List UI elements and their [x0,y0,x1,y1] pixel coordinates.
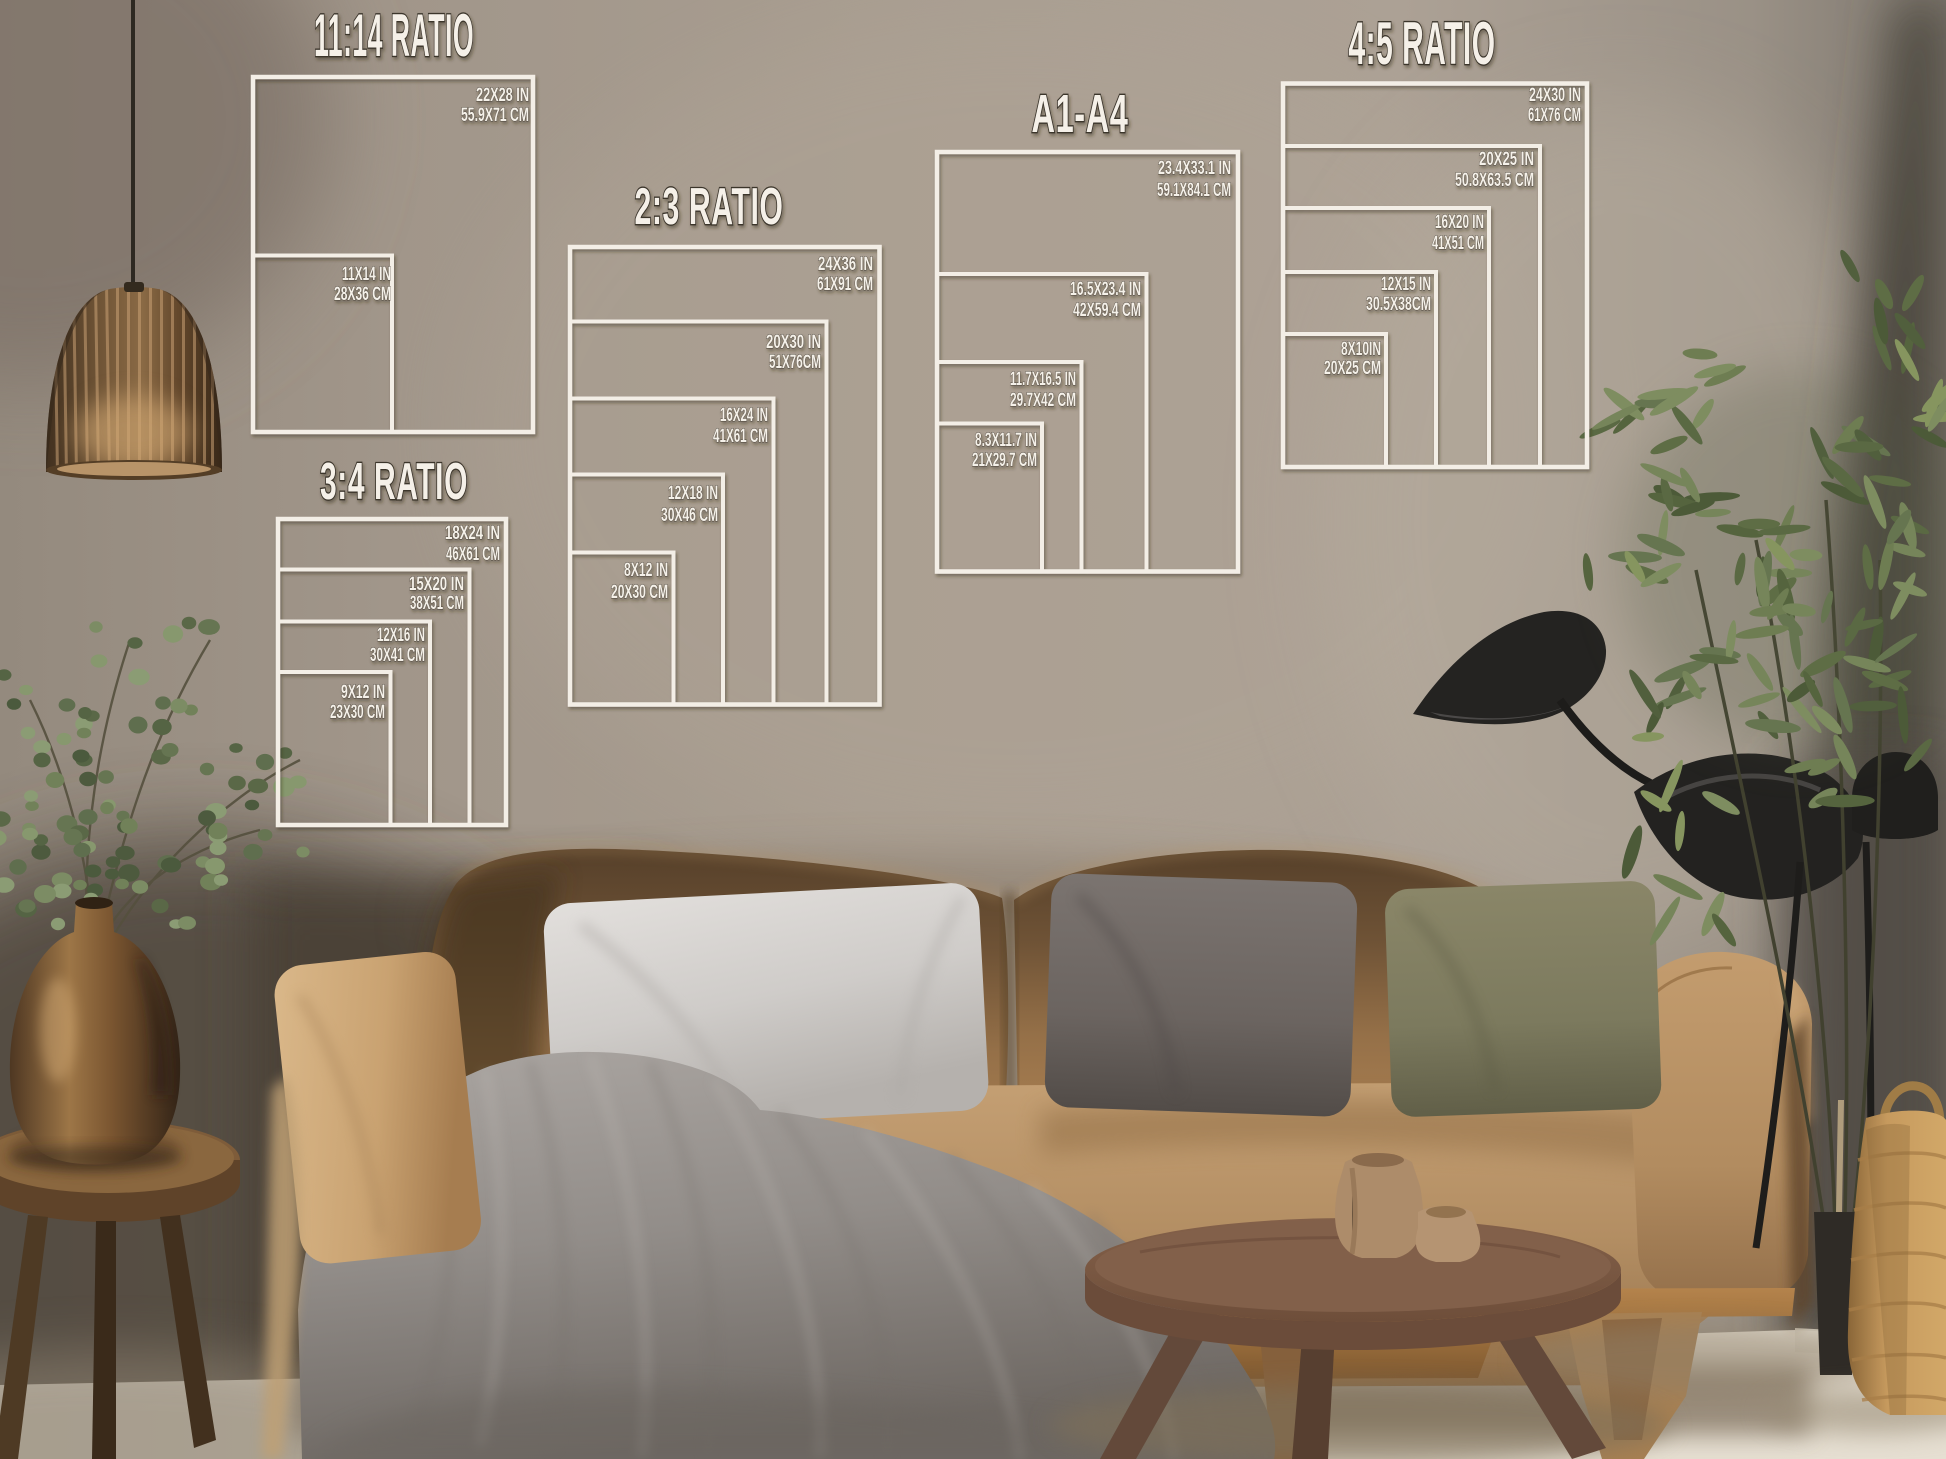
svg-text:9X12 IN: 9X12 IN [341,681,385,703]
svg-text:61X91 CM: 61X91 CM [817,273,873,295]
svg-text:12X18 IN: 12X18 IN [668,482,718,504]
svg-text:24X30 IN: 24X30 IN [1529,84,1581,106]
svg-text:41X61 CM: 41X61 CM [713,425,768,447]
svg-text:29.7X42 CM: 29.7X42 CM [1010,389,1076,411]
svg-text:28X36 CM: 28X36 CM [334,283,391,305]
svg-text:8X12 IN: 8X12 IN [624,559,668,581]
svg-text:30.5X38CM: 30.5X38CM [1366,293,1431,315]
svg-text:11.7X16.5 IN: 11.7X16.5 IN [1010,368,1076,390]
svg-text:20X25 IN: 20X25 IN [1479,148,1534,170]
svg-text:59.1X84.1 CM: 59.1X84.1 CM [1157,179,1231,201]
svg-text:18X24 IN: 18X24 IN [445,522,500,544]
svg-text:12X16 IN: 12X16 IN [377,624,425,646]
svg-text:50.8X63.5 CM: 50.8X63.5 CM [1455,169,1534,191]
svg-text:21X29.7 CM: 21X29.7 CM [972,449,1037,471]
svg-text:55.9X71 CM: 55.9X71 CM [461,104,529,126]
svg-text:11X14 IN: 11X14 IN [342,263,391,285]
svg-text:51X76CM: 51X76CM [769,351,821,373]
svg-text:20X30 CM: 20X30 CM [611,581,668,603]
svg-text:41X51 CM: 41X51 CM [1432,232,1484,254]
svg-text:46X61 CM: 46X61 CM [446,543,500,565]
svg-text:2:3 RATIO: 2:3 RATIO [635,178,784,236]
svg-text:16X24 IN: 16X24 IN [720,404,768,426]
svg-text:23X30 CM: 23X30 CM [330,701,385,723]
svg-text:20X25 CM: 20X25 CM [1324,357,1381,379]
svg-text:38X51 CM: 38X51 CM [410,592,464,614]
svg-text:8.3X11.7 IN: 8.3X11.7 IN [975,429,1037,451]
svg-text:23.4X33.1 IN: 23.4X33.1 IN [1158,157,1231,179]
svg-text:3:4 RATIO: 3:4 RATIO [320,453,468,511]
svg-text:30X41 CM: 30X41 CM [370,644,425,666]
svg-text:22X28 IN: 22X28 IN [476,84,529,106]
svg-text:11:14 RATIO: 11:14 RATIO [314,2,474,69]
svg-text:4:5 RATIO: 4:5 RATIO [1349,10,1496,77]
svg-text:42X59.4 CM: 42X59.4 CM [1073,299,1141,321]
svg-text:12X15 IN: 12X15 IN [1381,273,1431,295]
svg-text:16.5X23.4 IN: 16.5X23.4 IN [1070,278,1141,300]
svg-text:20X30 IN: 20X30 IN [766,331,821,353]
svg-text:A1-A4: A1-A4 [1032,84,1129,144]
svg-text:61X76 CM: 61X76 CM [1528,104,1581,126]
svg-text:24X36 IN: 24X36 IN [818,253,873,275]
svg-text:30X46 CM: 30X46 CM [661,504,718,526]
svg-text:16X20 IN: 16X20 IN [1435,211,1484,233]
